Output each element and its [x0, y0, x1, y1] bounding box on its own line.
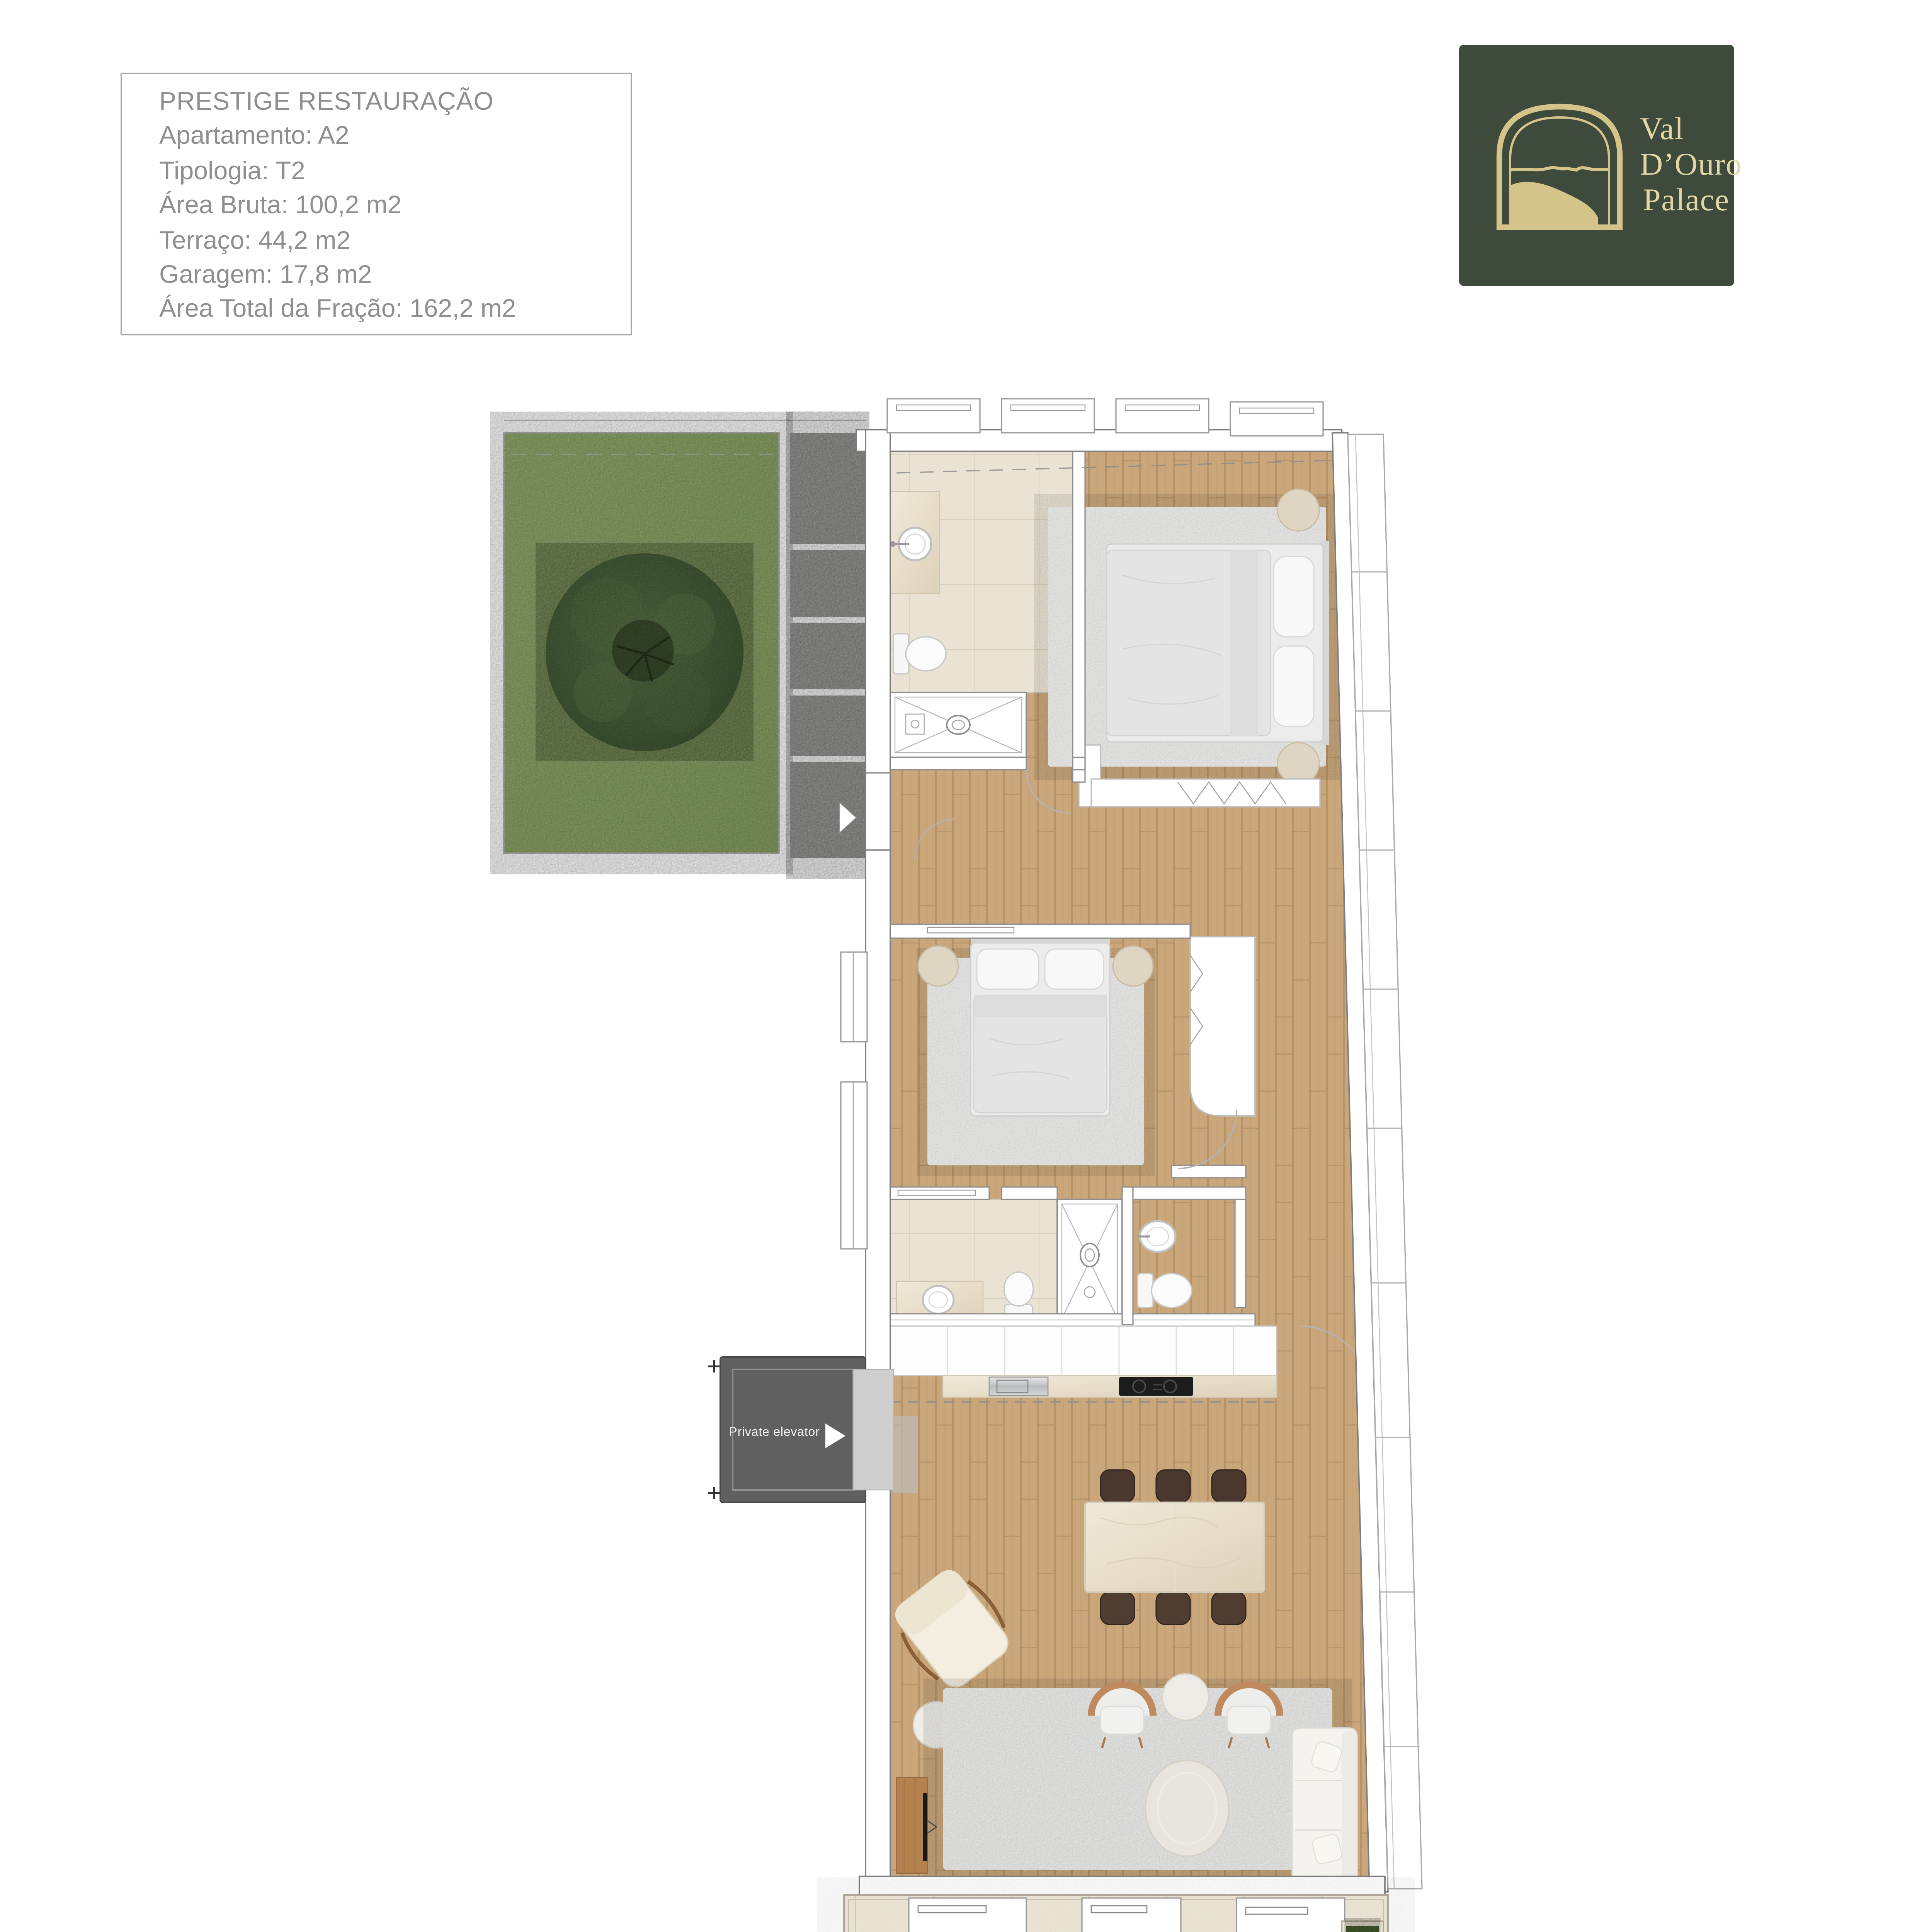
dining-table: [1085, 1502, 1264, 1592]
bedroom-1: [1048, 489, 1329, 807]
elevator-landing: [893, 1416, 918, 1493]
private-elevator: Private elevator: [708, 1357, 918, 1502]
elevator-label: Private elevator: [729, 1425, 820, 1439]
sliding-door-track: [898, 1190, 975, 1196]
page: PRESTIGE RESTAURAÇÃO Apartamento: A2 Tip…: [0, 0, 1917, 1932]
nightstand: [1277, 743, 1319, 784]
floor-plan: Private elevator: [0, 0, 1917, 1932]
shower-tray: [1057, 1199, 1122, 1329]
kitchen-cabinets: [890, 1326, 1277, 1376]
tv-icon: [923, 1793, 927, 1861]
kitchen: [890, 1314, 1277, 1402]
paved-walkway: [790, 433, 866, 858]
kitchen-sink: [989, 1377, 1048, 1396]
bed-master: [1107, 541, 1329, 745]
nightstand: [1277, 489, 1319, 531]
elevator-door: [853, 1369, 893, 1490]
sliding-door-track: [927, 927, 1014, 933]
nightstand: [1113, 946, 1153, 986]
wardrobe-closet: [1190, 937, 1255, 1116]
dining-area: [1085, 1470, 1264, 1624]
toilet-icon: [893, 634, 946, 674]
window-boxes-left: [841, 952, 867, 1249]
side-table: [1162, 1674, 1209, 1720]
cooktop: [1119, 1377, 1193, 1396]
nightstand: [918, 946, 958, 986]
bed-2: [971, 937, 1110, 1116]
terrace-planter: [1342, 1921, 1383, 1932]
toilet-icon: [1152, 1274, 1192, 1308]
garden-tree: [546, 553, 743, 751]
shower-tray: [890, 692, 1026, 757]
toilet-tank: [1138, 1274, 1153, 1308]
sofa: [1292, 1728, 1357, 1883]
window-boxes-bottom: [909, 1898, 1345, 1932]
